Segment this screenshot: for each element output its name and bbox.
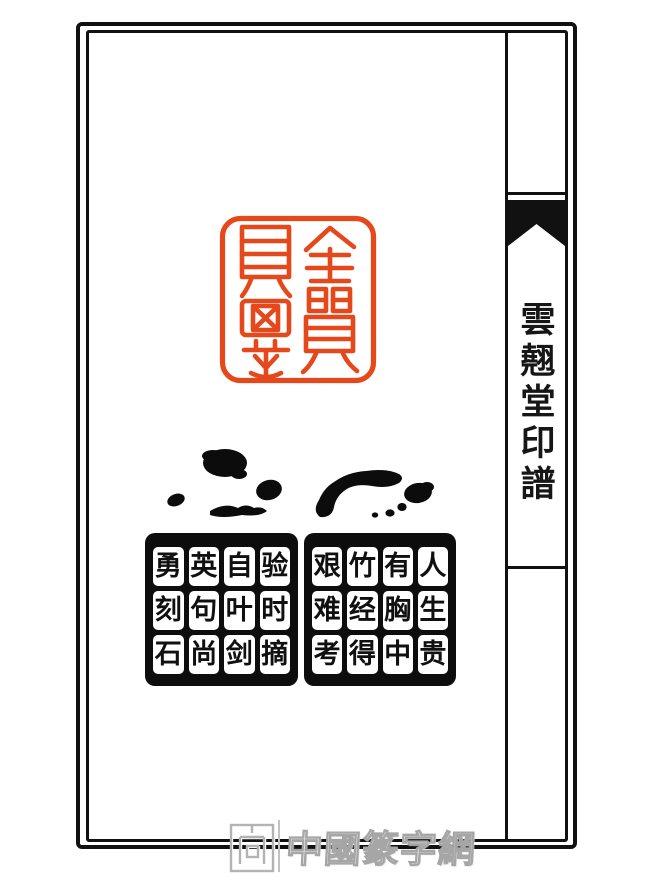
watermark-logo-icon [228,818,276,874]
seal-grid-cell: 生 [418,591,448,630]
seal-grid-cell: 胸 [383,591,413,630]
seal-rubbing-left: 勇 英 自 验 刻 句 叶 时 石 尚 剑 摘 [145,533,298,686]
watermark-logo-divider [278,820,280,872]
seal-grid-cell: 经 [347,591,377,630]
spine-title-box: 雲翹堂印譜 [506,288,564,518]
seal-rubbing-right: 艰 竹 有 人 难 经 胸 生 考 得 中 贵 [304,533,456,686]
seal-grid-cell: 竹 [347,547,377,586]
seal-grid-cell: 刻 [153,591,184,630]
seal-grid-cell: 有 [383,547,413,586]
seal-grid-cell: 人 [418,547,448,586]
page-inner-border [86,30,568,842]
spine-title: 雲翹堂印譜 [518,301,553,506]
seal-grid-cell: 叶 [224,591,255,630]
watermark: 中國篆字網 [228,814,476,878]
seal-grid-cell: 验 [260,547,291,586]
seal-grid-cell: 尚 [189,635,220,674]
spine-lower-rule [508,566,565,569]
fishtail-top-rule [508,192,565,195]
fishtail-icon [508,200,565,248]
watermark-text: 中國篆字網 [285,819,478,873]
seal-grid-cell: 难 [312,591,342,630]
seal-grid-cell: 艰 [312,547,342,586]
seal-grid-cell: 自 [224,547,255,586]
vermillion-seal-impression [218,213,378,386]
seal-grid-cell: 时 [260,591,291,630]
seal-grid-cell: 剑 [224,635,255,674]
seal-grid-cell: 石 [153,635,184,674]
seal-grid-cell: 考 [312,635,342,674]
seal-grid-cell: 英 [189,547,220,586]
seal-grid-cell: 中 [383,635,413,674]
ink-rubbing-marks [150,445,470,535]
seal-grid-cell: 摘 [260,635,291,674]
seal-grid-cell: 句 [189,591,220,630]
seal-grid-cell: 得 [347,635,377,674]
seal-grid-cell: 勇 [153,547,184,586]
scanned-seal-album-page: 雲翹堂印譜 [0,0,660,880]
seal-grid-cell: 贵 [418,635,448,674]
